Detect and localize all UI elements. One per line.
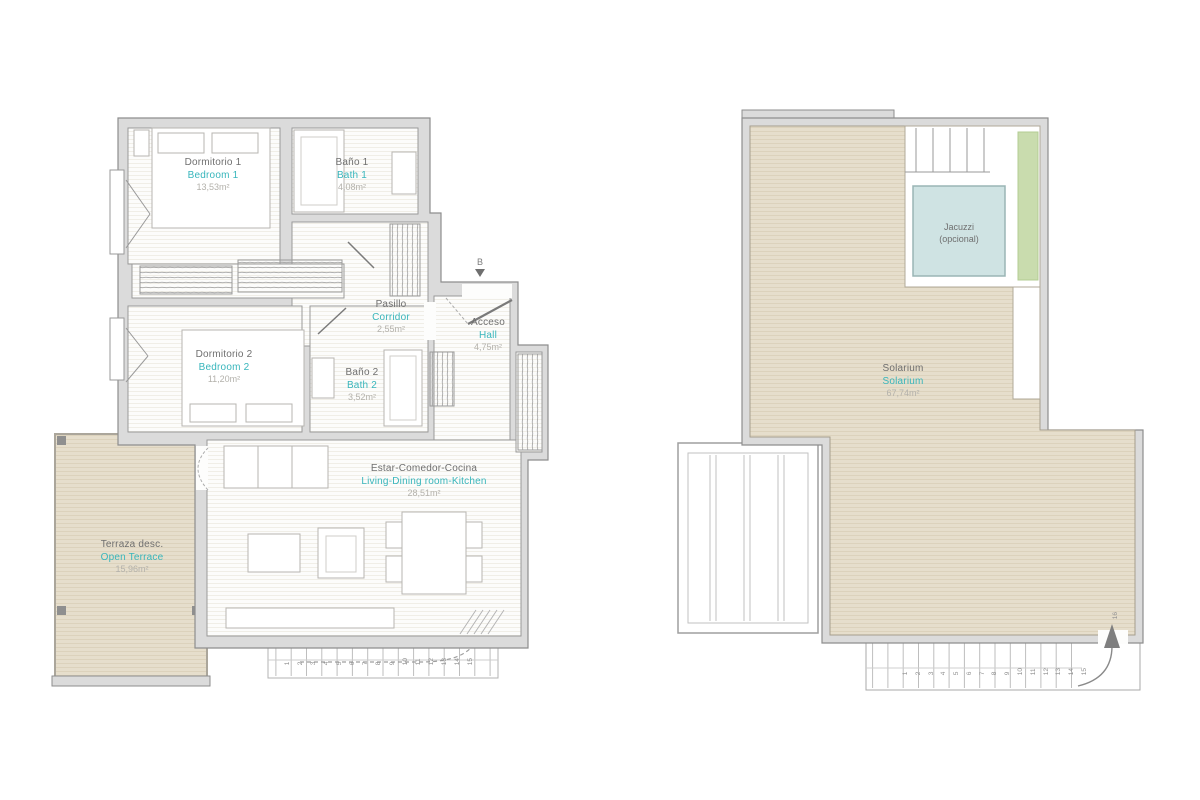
room-name-es: Terraza desc. xyxy=(101,538,164,551)
pergola xyxy=(678,443,818,633)
label-bath1: Baño 1 Bath 1 4,08m² xyxy=(336,156,369,194)
room-name-es: Solarium xyxy=(882,362,923,375)
stair-number: 10 xyxy=(1017,668,1024,675)
room-name-en: Bath 2 xyxy=(346,379,379,392)
room-name-es: Dormitorio 1 xyxy=(185,156,242,169)
label-bedroom2: Dormitorio 2 Bedroom 2 11,20m² xyxy=(196,348,253,386)
chair xyxy=(386,556,402,582)
jacuzzi-line1: Jacuzzi xyxy=(939,222,979,234)
label-living: Estar-Comedor-Cocina Living-Dining room-… xyxy=(361,462,486,500)
stair-number: 14 xyxy=(454,658,461,665)
stair-number: 13 xyxy=(1055,668,1062,675)
wardrobe1 xyxy=(140,266,232,294)
label-solarium: Solarium Solarium 67,74m² xyxy=(882,362,923,400)
stair-number: 1 xyxy=(902,668,909,675)
entrance-letter: B xyxy=(477,257,483,267)
stair-number: 5 xyxy=(953,668,960,675)
stair-number: 13 xyxy=(441,658,448,665)
floor-stair-numbers: 1 2 3 4 5 6 7 8 9 10 11 12 13 14 15 xyxy=(284,658,474,665)
floor-plan-group xyxy=(52,118,548,686)
stair-number: 9 xyxy=(1004,668,1011,675)
closet-corridor xyxy=(390,224,420,296)
stair-number: 12 xyxy=(1043,668,1050,675)
floorplan-drawing xyxy=(0,0,1200,800)
chair xyxy=(466,556,482,582)
stair-number: 4 xyxy=(940,668,947,675)
stair-number: 8 xyxy=(991,668,998,675)
stair-number: 4 xyxy=(323,658,330,665)
room-name-es: Acceso xyxy=(471,316,505,329)
room-area: 4,75m² xyxy=(471,342,505,354)
stair-number: 12 xyxy=(428,658,435,665)
stair-number: 14 xyxy=(1068,668,1075,675)
wardrobe2 xyxy=(238,260,342,292)
roof-stair-numbers: 1 2 3 4 5 6 7 8 9 10 11 12 13 14 15 xyxy=(902,668,1088,675)
chair xyxy=(466,522,482,548)
stair-number: 2 xyxy=(297,658,304,665)
sideboard xyxy=(226,608,394,628)
stair-number: 6 xyxy=(349,658,356,665)
room-name-en: Bedroom 2 xyxy=(196,361,253,374)
entrance-marker: B xyxy=(475,258,485,277)
bed1-pillow xyxy=(158,133,204,153)
nightstand xyxy=(134,130,149,156)
room-area: 13,53m² xyxy=(185,182,242,194)
room-name-es: Baño 1 xyxy=(336,156,369,169)
bed2-pillow xyxy=(190,404,236,422)
room-name-en: Solarium xyxy=(882,375,923,388)
chair xyxy=(386,522,402,548)
room-area: 28,51m² xyxy=(361,488,486,500)
entrance-arrow-icon xyxy=(475,269,485,277)
room-name-en: Bedroom 1 xyxy=(185,169,242,182)
room-name-en: Bath 1 xyxy=(336,169,369,182)
stair-number: 2 xyxy=(915,668,922,675)
label-terrace: Terraza desc. Open Terrace 15,96m² xyxy=(101,538,164,576)
room-area: 4,08m² xyxy=(336,182,369,194)
stair-number: 11 xyxy=(415,658,422,665)
label-jacuzzi: Jacuzzi (opcional) xyxy=(939,222,979,245)
room-name-en: Open Terrace xyxy=(101,551,164,564)
label-corridor: Pasillo Corridor 2,55m² xyxy=(372,298,410,336)
bed1-pillow xyxy=(212,133,258,153)
stair-number: 8 xyxy=(375,658,382,665)
room-area: 11,20m² xyxy=(196,374,253,386)
stair-number: 10 xyxy=(402,658,409,665)
floorplan-page: { "colors": { "accent_teal": "#38b6bc", … xyxy=(0,0,1200,800)
bed2-pillow xyxy=(246,404,292,422)
stair-number: 3 xyxy=(928,668,935,675)
sofa xyxy=(224,446,328,488)
room-area: 2,55m² xyxy=(372,324,410,336)
stair-number: 11 xyxy=(1030,668,1037,675)
stair-number: 15 xyxy=(467,658,474,665)
jacuzzi-line2: (opcional) xyxy=(939,234,979,246)
room-name-es: Pasillo xyxy=(372,298,410,311)
stair-number: 5 xyxy=(336,658,343,665)
room-area: 67,74m² xyxy=(882,388,923,400)
dining-table xyxy=(402,512,466,594)
room-name-es: Estar-Comedor-Cocina xyxy=(361,462,486,475)
closet-hall-west xyxy=(430,352,454,406)
green-strip xyxy=(1018,132,1038,280)
room-name-es: Baño 2 xyxy=(346,366,379,379)
roof-plan-group xyxy=(678,110,1143,690)
roof-landing-strip xyxy=(1013,287,1040,399)
coffee-table xyxy=(248,534,300,572)
closet-hall-east xyxy=(518,354,542,450)
label-bath2: Baño 2 Bath 2 3,52m² xyxy=(346,366,379,404)
stair-number: 6 xyxy=(966,668,973,675)
room-name-en: Hall xyxy=(471,329,505,342)
room-area: 15,96m² xyxy=(101,564,164,576)
stair-number: 7 xyxy=(362,658,369,665)
room-name-es: Dormitorio 2 xyxy=(196,348,253,361)
stair-number: 7 xyxy=(979,668,986,675)
stair-number: 15 xyxy=(1081,668,1088,675)
room-name-en: Living-Dining room-Kitchen xyxy=(361,475,486,488)
room-area: 3,52m² xyxy=(346,392,379,404)
label-hall: Acceso Hall 4,75m² xyxy=(471,316,505,354)
sink2 xyxy=(312,358,334,398)
stair-number: 3 xyxy=(310,658,317,665)
sink1 xyxy=(392,152,416,194)
room-name-en: Corridor xyxy=(372,311,410,324)
stair-number: 1 xyxy=(284,658,291,665)
step-16-marker: 16 xyxy=(1112,612,1119,619)
label-bedroom1: Dormitorio 1 Bedroom 1 13,53m² xyxy=(185,156,242,194)
stair-number: 9 xyxy=(389,658,396,665)
